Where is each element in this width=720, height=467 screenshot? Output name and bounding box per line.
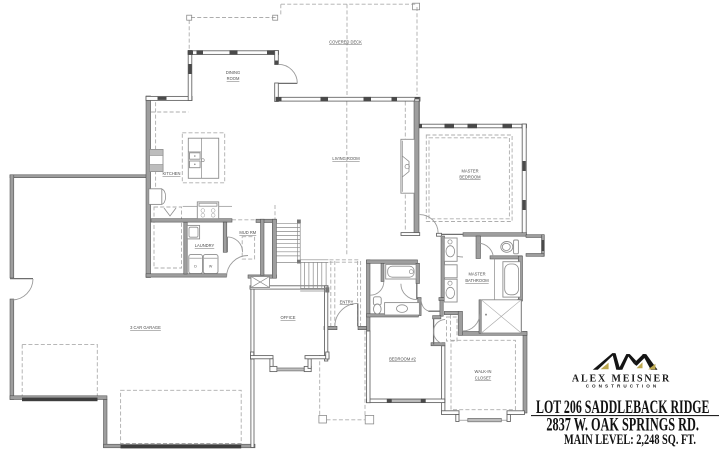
svg-text:COVERED DECK: COVERED DECK bbox=[329, 40, 362, 45]
svg-text:MASTER: MASTER bbox=[468, 272, 485, 277]
svg-text:BEDROOM: BEDROOM bbox=[459, 175, 481, 180]
svg-text:ROOM: ROOM bbox=[227, 76, 240, 81]
svg-text:BATHROOM: BATHROOM bbox=[465, 278, 489, 283]
svg-text:3 CAR GARAGE: 3 CAR GARAGE bbox=[130, 325, 161, 330]
svg-text:KITCHEN: KITCHEN bbox=[163, 171, 181, 176]
svg-text:LAUNDRY: LAUNDRY bbox=[195, 243, 215, 248]
svg-text:MUD RM: MUD RM bbox=[239, 230, 256, 235]
svg-text:CLOSET: CLOSET bbox=[475, 376, 492, 381]
svg-text:WALK-IN: WALK-IN bbox=[475, 369, 492, 374]
svg-text:CONSTRUCTION: CONSTRUCTION bbox=[586, 384, 660, 389]
svg-text:OFFICE: OFFICE bbox=[280, 315, 295, 320]
svg-text:DINING: DINING bbox=[226, 70, 240, 75]
svg-text:LIVING ROOM: LIVING ROOM bbox=[332, 156, 360, 161]
svg-text:MAIN LEVEL: 2,248 SQ. FT.: MAIN LEVEL: 2,248 SQ. FT. bbox=[564, 432, 696, 448]
svg-text:MASTER: MASTER bbox=[461, 169, 478, 174]
svg-text:W: W bbox=[209, 265, 213, 269]
svg-text:D: D bbox=[194, 265, 197, 269]
svg-text:ENTRY: ENTRY bbox=[340, 300, 354, 305]
svg-text:BEDROOM #2: BEDROOM #2 bbox=[389, 357, 417, 362]
